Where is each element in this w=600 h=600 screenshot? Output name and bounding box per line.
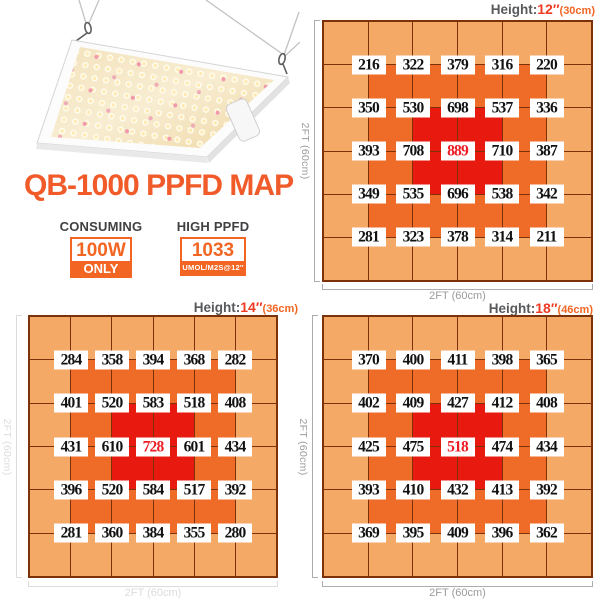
ppfd-value: 360 bbox=[95, 523, 129, 542]
ppfd-value: 369 bbox=[352, 523, 386, 542]
x-dimension-label: 2FT (60cm) bbox=[28, 587, 278, 599]
ppfd-value: 349 bbox=[352, 185, 386, 204]
ppfd-value: 696 bbox=[441, 185, 475, 204]
y-dimension-label: 2FT (60cm) bbox=[297, 418, 309, 475]
ppfd-value: 395 bbox=[396, 523, 430, 542]
x-dimension: 2FT (60cm) bbox=[322, 581, 593, 599]
ppfd-value: 392 bbox=[530, 480, 564, 499]
ppfd-value: 475 bbox=[396, 437, 430, 456]
ppfd-value: 434 bbox=[218, 437, 252, 456]
ppfd-value: 537 bbox=[485, 99, 519, 118]
ppfd-value: 520 bbox=[95, 480, 129, 499]
ppfd-value: 601 bbox=[177, 437, 211, 456]
ppfd-map-height-14in: Height:14″(36cm) 2FT (60cm) 284358394368… bbox=[28, 315, 278, 578]
ppfd-value: 434 bbox=[530, 437, 564, 456]
ppfd-value: 358 bbox=[95, 351, 129, 370]
ppfd-value: 413 bbox=[485, 480, 519, 499]
ppfd-value: 384 bbox=[136, 523, 170, 542]
ppfd-value: 710 bbox=[485, 142, 519, 161]
ppfd-value: 342 bbox=[530, 185, 564, 204]
ppfd-value: 410 bbox=[396, 480, 430, 499]
ppfd-value: 392 bbox=[218, 480, 252, 499]
map-height-header: Height:12″(30cm) bbox=[491, 1, 595, 19]
ppfd-value: 387 bbox=[530, 142, 564, 161]
ppfd-value: 393 bbox=[352, 142, 386, 161]
consuming-label: CONSUMING bbox=[56, 219, 146, 234]
ppfd-value: 520 bbox=[95, 394, 129, 413]
ppfd-value: 322 bbox=[396, 56, 430, 75]
ppfd-value: 370 bbox=[352, 351, 386, 370]
consuming-value: 100W bbox=[72, 239, 130, 261]
grow-light-product-image bbox=[10, 0, 300, 170]
ppfd-map-infographic: QB-1000 PPFD MAP CONSUMING 100W ONLY HIG… bbox=[0, 0, 600, 600]
ppfd-value: 393 bbox=[352, 480, 386, 499]
ppfd-value: 409 bbox=[441, 523, 475, 542]
y-dimension-label: 2FT (60cm) bbox=[299, 122, 311, 179]
height-label: Height: bbox=[491, 2, 538, 17]
ppfd-value: 411 bbox=[441, 351, 475, 370]
ppfd-value: 362 bbox=[530, 523, 564, 542]
ppfd-value: 400 bbox=[396, 351, 430, 370]
x-dimension-label: 2FT (60cm) bbox=[322, 587, 593, 599]
ppfd-value: 394 bbox=[136, 351, 170, 370]
ppfd-value: 889 bbox=[441, 142, 475, 161]
ppfd-value: 425 bbox=[352, 437, 386, 456]
y-dimension: 2FT (60cm) bbox=[300, 20, 320, 282]
consuming-value-box: 100W ONLY bbox=[70, 237, 132, 278]
ppfd-value: 323 bbox=[396, 228, 430, 247]
y-dimension: 2FT (60cm) bbox=[2, 315, 22, 578]
ppfd-value: 398 bbox=[485, 351, 519, 370]
ppfd-value: 708 bbox=[396, 142, 430, 161]
height-value: 14″ bbox=[240, 299, 262, 315]
ppfd-map-height-12in: Height:12″(30cm) 2FT (60cm) 216322379316… bbox=[322, 20, 593, 282]
ppfd-value: 517 bbox=[177, 480, 211, 499]
high-ppfd-badge: HIGH PPFD 1033 UMOL/M2S@12″ bbox=[168, 219, 258, 276]
ppfd-map-height-18in: Height:18″(46cm) 2FT (60cm) 370400411398… bbox=[322, 315, 593, 578]
ppfd-value: 474 bbox=[485, 437, 519, 456]
ppfd-value: 396 bbox=[54, 480, 88, 499]
ppfd-value: 518 bbox=[441, 437, 475, 456]
ppfd-value: 728 bbox=[136, 437, 170, 456]
ppfd-value: 282 bbox=[218, 351, 252, 370]
ppfd-value: 698 bbox=[441, 99, 475, 118]
ppfd-value: 280 bbox=[218, 523, 252, 542]
height-value: 18″ bbox=[535, 300, 557, 316]
height-label: Height: bbox=[489, 301, 536, 316]
ppfd-value: 314 bbox=[485, 228, 519, 247]
ppfd-value: 396 bbox=[485, 523, 519, 542]
heatmap-grid: 3704004113983654024094274124084254755184… bbox=[322, 315, 593, 578]
heatmap-grid: 2163223793162203505306985373363937088897… bbox=[322, 20, 593, 282]
ppfd-value: 281 bbox=[54, 523, 88, 542]
ppfd-value: 518 bbox=[177, 394, 211, 413]
ppfd-value: 401 bbox=[54, 394, 88, 413]
height-cm: (30cm) bbox=[560, 5, 595, 17]
high-ppfd-label: HIGH PPFD bbox=[168, 219, 258, 234]
ppfd-value: 368 bbox=[177, 351, 211, 370]
ppfd-value: 432 bbox=[441, 480, 475, 499]
ppfd-value: 584 bbox=[136, 480, 170, 499]
x-dimension: 2FT (60cm) bbox=[28, 581, 278, 599]
high-ppfd-value: 1033 bbox=[182, 239, 244, 261]
ppfd-value: 431 bbox=[54, 437, 88, 456]
ppfd-value: 379 bbox=[441, 56, 475, 75]
height-value: 12″ bbox=[537, 1, 559, 17]
ppfd-value: 316 bbox=[485, 56, 519, 75]
ppfd-value: 530 bbox=[396, 99, 430, 118]
ppfd-value: 211 bbox=[530, 228, 564, 247]
ppfd-value: 220 bbox=[530, 56, 564, 75]
ppfd-value: 402 bbox=[352, 394, 386, 413]
height-cm: (36cm) bbox=[263, 303, 298, 315]
consuming-badge: CONSUMING 100W ONLY bbox=[56, 219, 146, 278]
y-dimension: 2FT (60cm) bbox=[298, 315, 318, 578]
ppfd-value: 412 bbox=[485, 394, 519, 413]
ppfd-value: 365 bbox=[530, 351, 564, 370]
ppfd-value: 355 bbox=[177, 523, 211, 542]
ppfd-value: 583 bbox=[136, 394, 170, 413]
high-ppfd-subtext: UMOL/M2S@12″ bbox=[182, 261, 244, 274]
y-dimension-bracket bbox=[16, 315, 22, 578]
ppfd-value: 378 bbox=[441, 228, 475, 247]
ppfd-value: 409 bbox=[396, 394, 430, 413]
ppfd-value: 610 bbox=[95, 437, 129, 456]
high-ppfd-value-box: 1033 UMOL/M2S@12″ bbox=[180, 237, 246, 276]
heatmap-grid: 2843583943682824015205835184084316107286… bbox=[28, 315, 278, 578]
y-dimension-bracket bbox=[314, 20, 320, 282]
ppfd-value: 535 bbox=[396, 185, 430, 204]
ppfd-value: 284 bbox=[54, 351, 88, 370]
page-title: QB-1000 PPFD MAP bbox=[24, 169, 293, 203]
y-dimension-label: 2FT (60cm) bbox=[1, 418, 13, 475]
ppfd-value: 336 bbox=[530, 99, 564, 118]
ppfd-value: 408 bbox=[530, 394, 564, 413]
ppfd-value: 216 bbox=[352, 56, 386, 75]
ppfd-value: 408 bbox=[218, 394, 252, 413]
ppfd-value: 427 bbox=[441, 394, 475, 413]
y-dimension-bracket bbox=[312, 315, 318, 578]
height-label: Height: bbox=[194, 300, 241, 315]
ppfd-value: 281 bbox=[352, 228, 386, 247]
ppfd-value: 538 bbox=[485, 185, 519, 204]
consuming-subtext: ONLY bbox=[72, 261, 130, 276]
ppfd-value: 350 bbox=[352, 99, 386, 118]
